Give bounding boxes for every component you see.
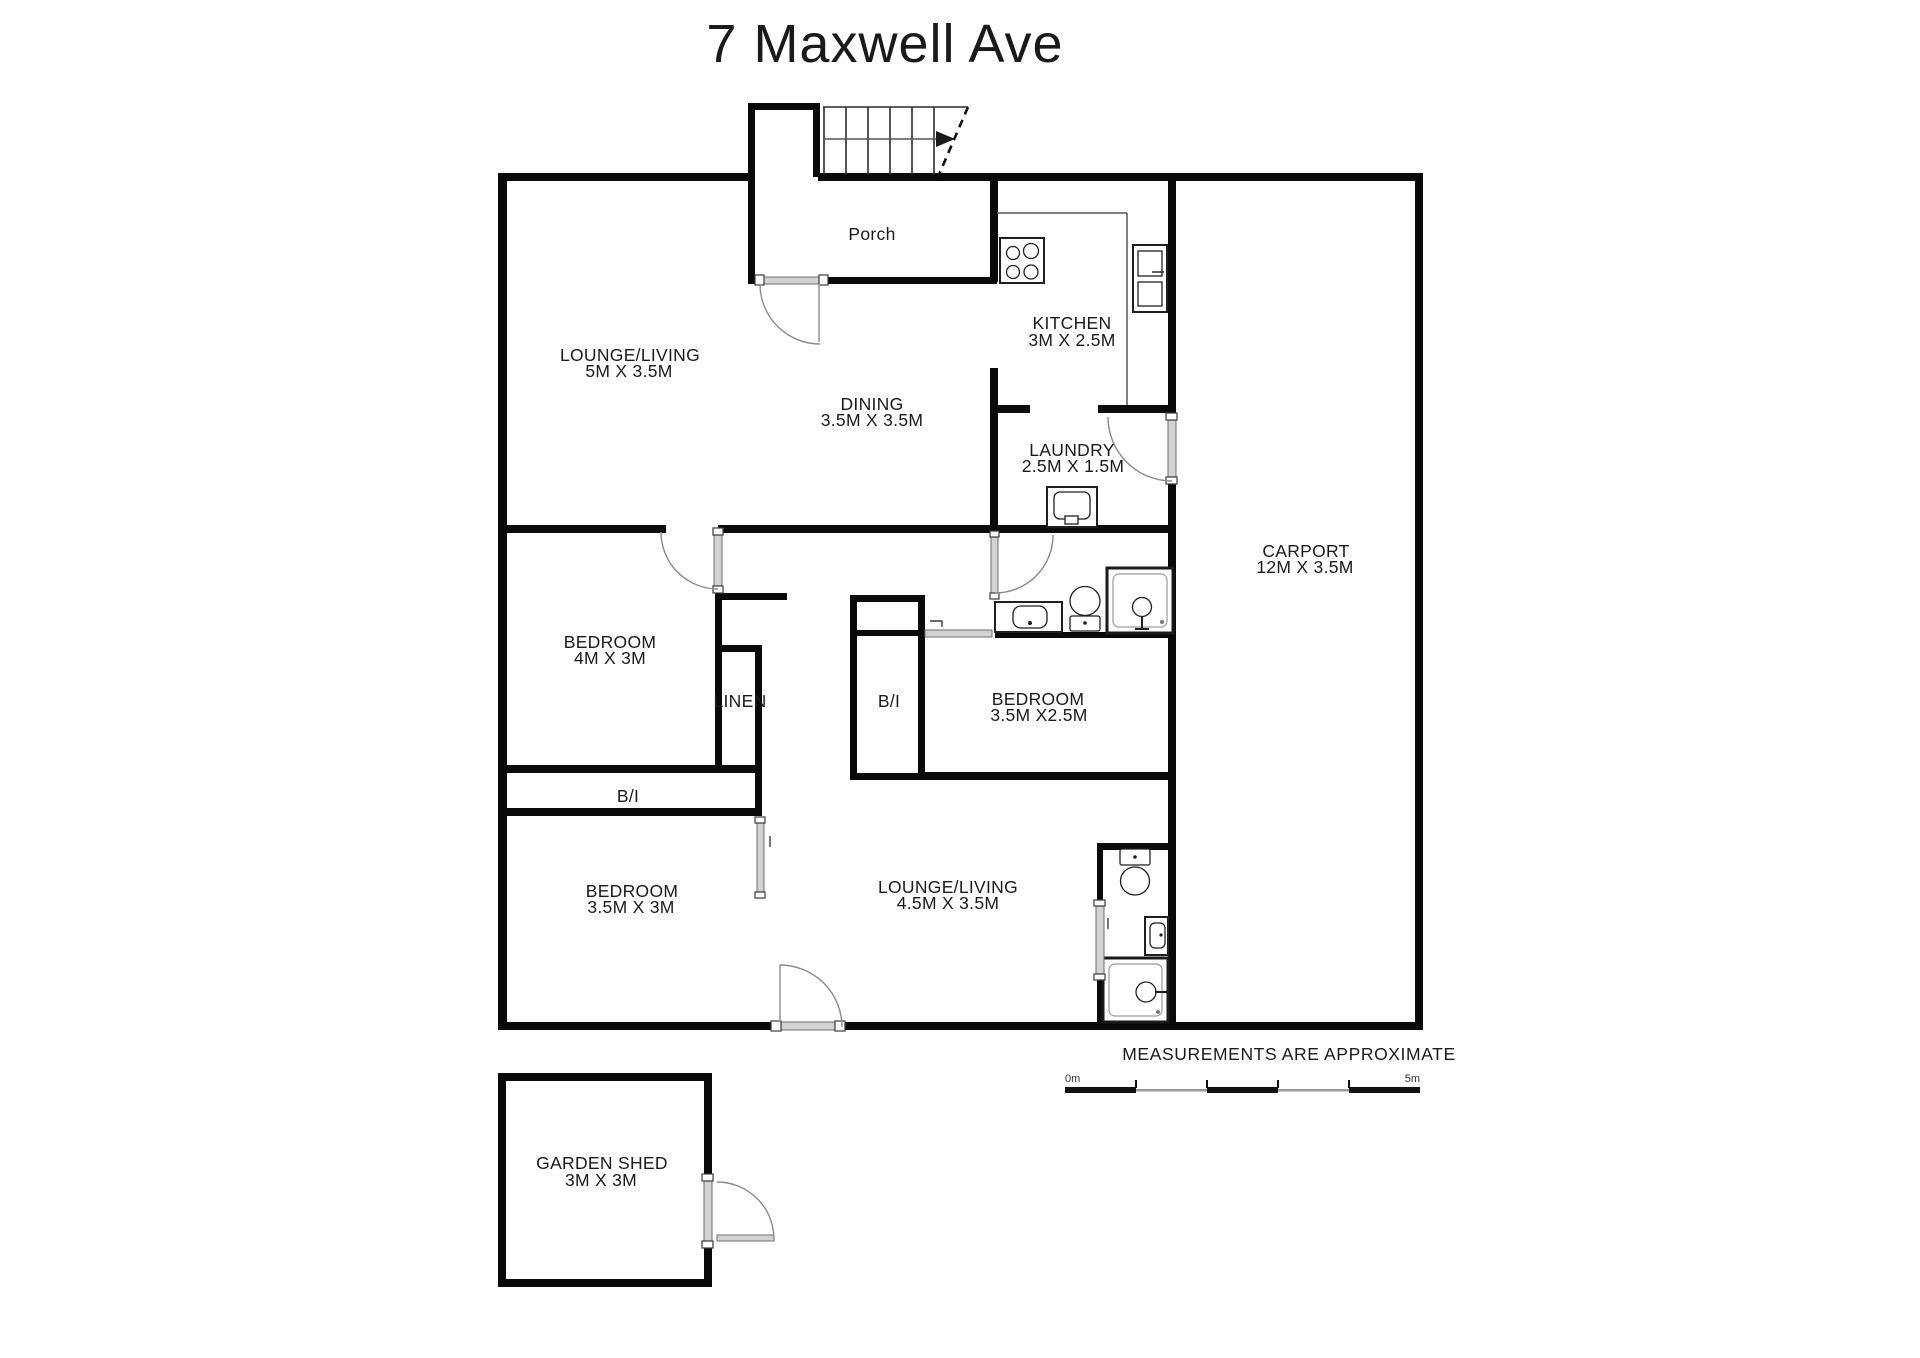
stairs-direction-arrow-icon (936, 131, 955, 147)
toilet-icon (1070, 587, 1100, 632)
room-dims-lounge-top: 5M X 3.5M (585, 361, 672, 381)
bedroom1-door (661, 528, 723, 593)
bathroom-bottom-fixtures (1103, 849, 1168, 1022)
room-dims-bedroom2: 3.5M X2.5M (990, 705, 1087, 725)
toilet-icon (1120, 849, 1150, 895)
room-dims-dining: 3.5M X 3.5M (821, 410, 924, 430)
bathroom-top-door (990, 531, 1053, 599)
room-dims-lounge-bottom: 4.5M X 3.5M (897, 893, 1000, 913)
bedroom3-sliding-door (755, 817, 770, 898)
sink-icon (995, 602, 1062, 632)
fridge-icon (1133, 245, 1167, 312)
floor-plan-page: 7 Maxwell Ave Porch LOUNGE/LIVING 5M X 3… (0, 0, 1920, 1358)
room-dims-laundry: 2.5M X 1.5M (1022, 456, 1125, 476)
main-entry-door (771, 965, 845, 1031)
sink-icon (1145, 917, 1168, 955)
room-dims-garden-shed: 3M X 3M (565, 1170, 637, 1190)
garden-shed-door (702, 1174, 774, 1248)
scale-start-label: 0m (1065, 1073, 1080, 1085)
room-dims-carport: 12M X 3.5M (1256, 557, 1353, 577)
stove-icon (1000, 238, 1044, 283)
room-dims-kitchen: 3M X 2.5M (1028, 330, 1115, 350)
room-label-bi-strip: B/I (617, 786, 639, 806)
shower-icon (1103, 958, 1168, 1022)
shower-icon (1107, 568, 1173, 633)
room-label-bi-closet: B/I (878, 691, 900, 711)
page-title: 7 Maxwell Ave (706, 14, 1063, 74)
bathroom-top-fixtures (995, 568, 1173, 633)
room-dims-bedroom3: 3.5M X 3M (587, 897, 674, 917)
bedroom2-sliding-door (925, 621, 992, 637)
stairs-icon (823, 107, 968, 177)
scale-end-label: 5m (1405, 1073, 1420, 1085)
scale-bar (1065, 1080, 1420, 1093)
room-dims-bedroom1: 4M X 3M (574, 648, 646, 668)
disclaimer-text: MEASUREMENTS ARE APPROXIMATE (1122, 1044, 1455, 1064)
room-label-porch: Porch (848, 224, 895, 244)
floor-plan-drawing: 7 Maxwell Ave Porch LOUNGE/LIVING 5M X 3… (0, 0, 1920, 1358)
walls (498, 103, 1423, 1287)
room-label-linen: LINEN (713, 691, 766, 711)
porch-entry-door (755, 275, 828, 344)
laundry-tub-icon (1047, 487, 1097, 527)
